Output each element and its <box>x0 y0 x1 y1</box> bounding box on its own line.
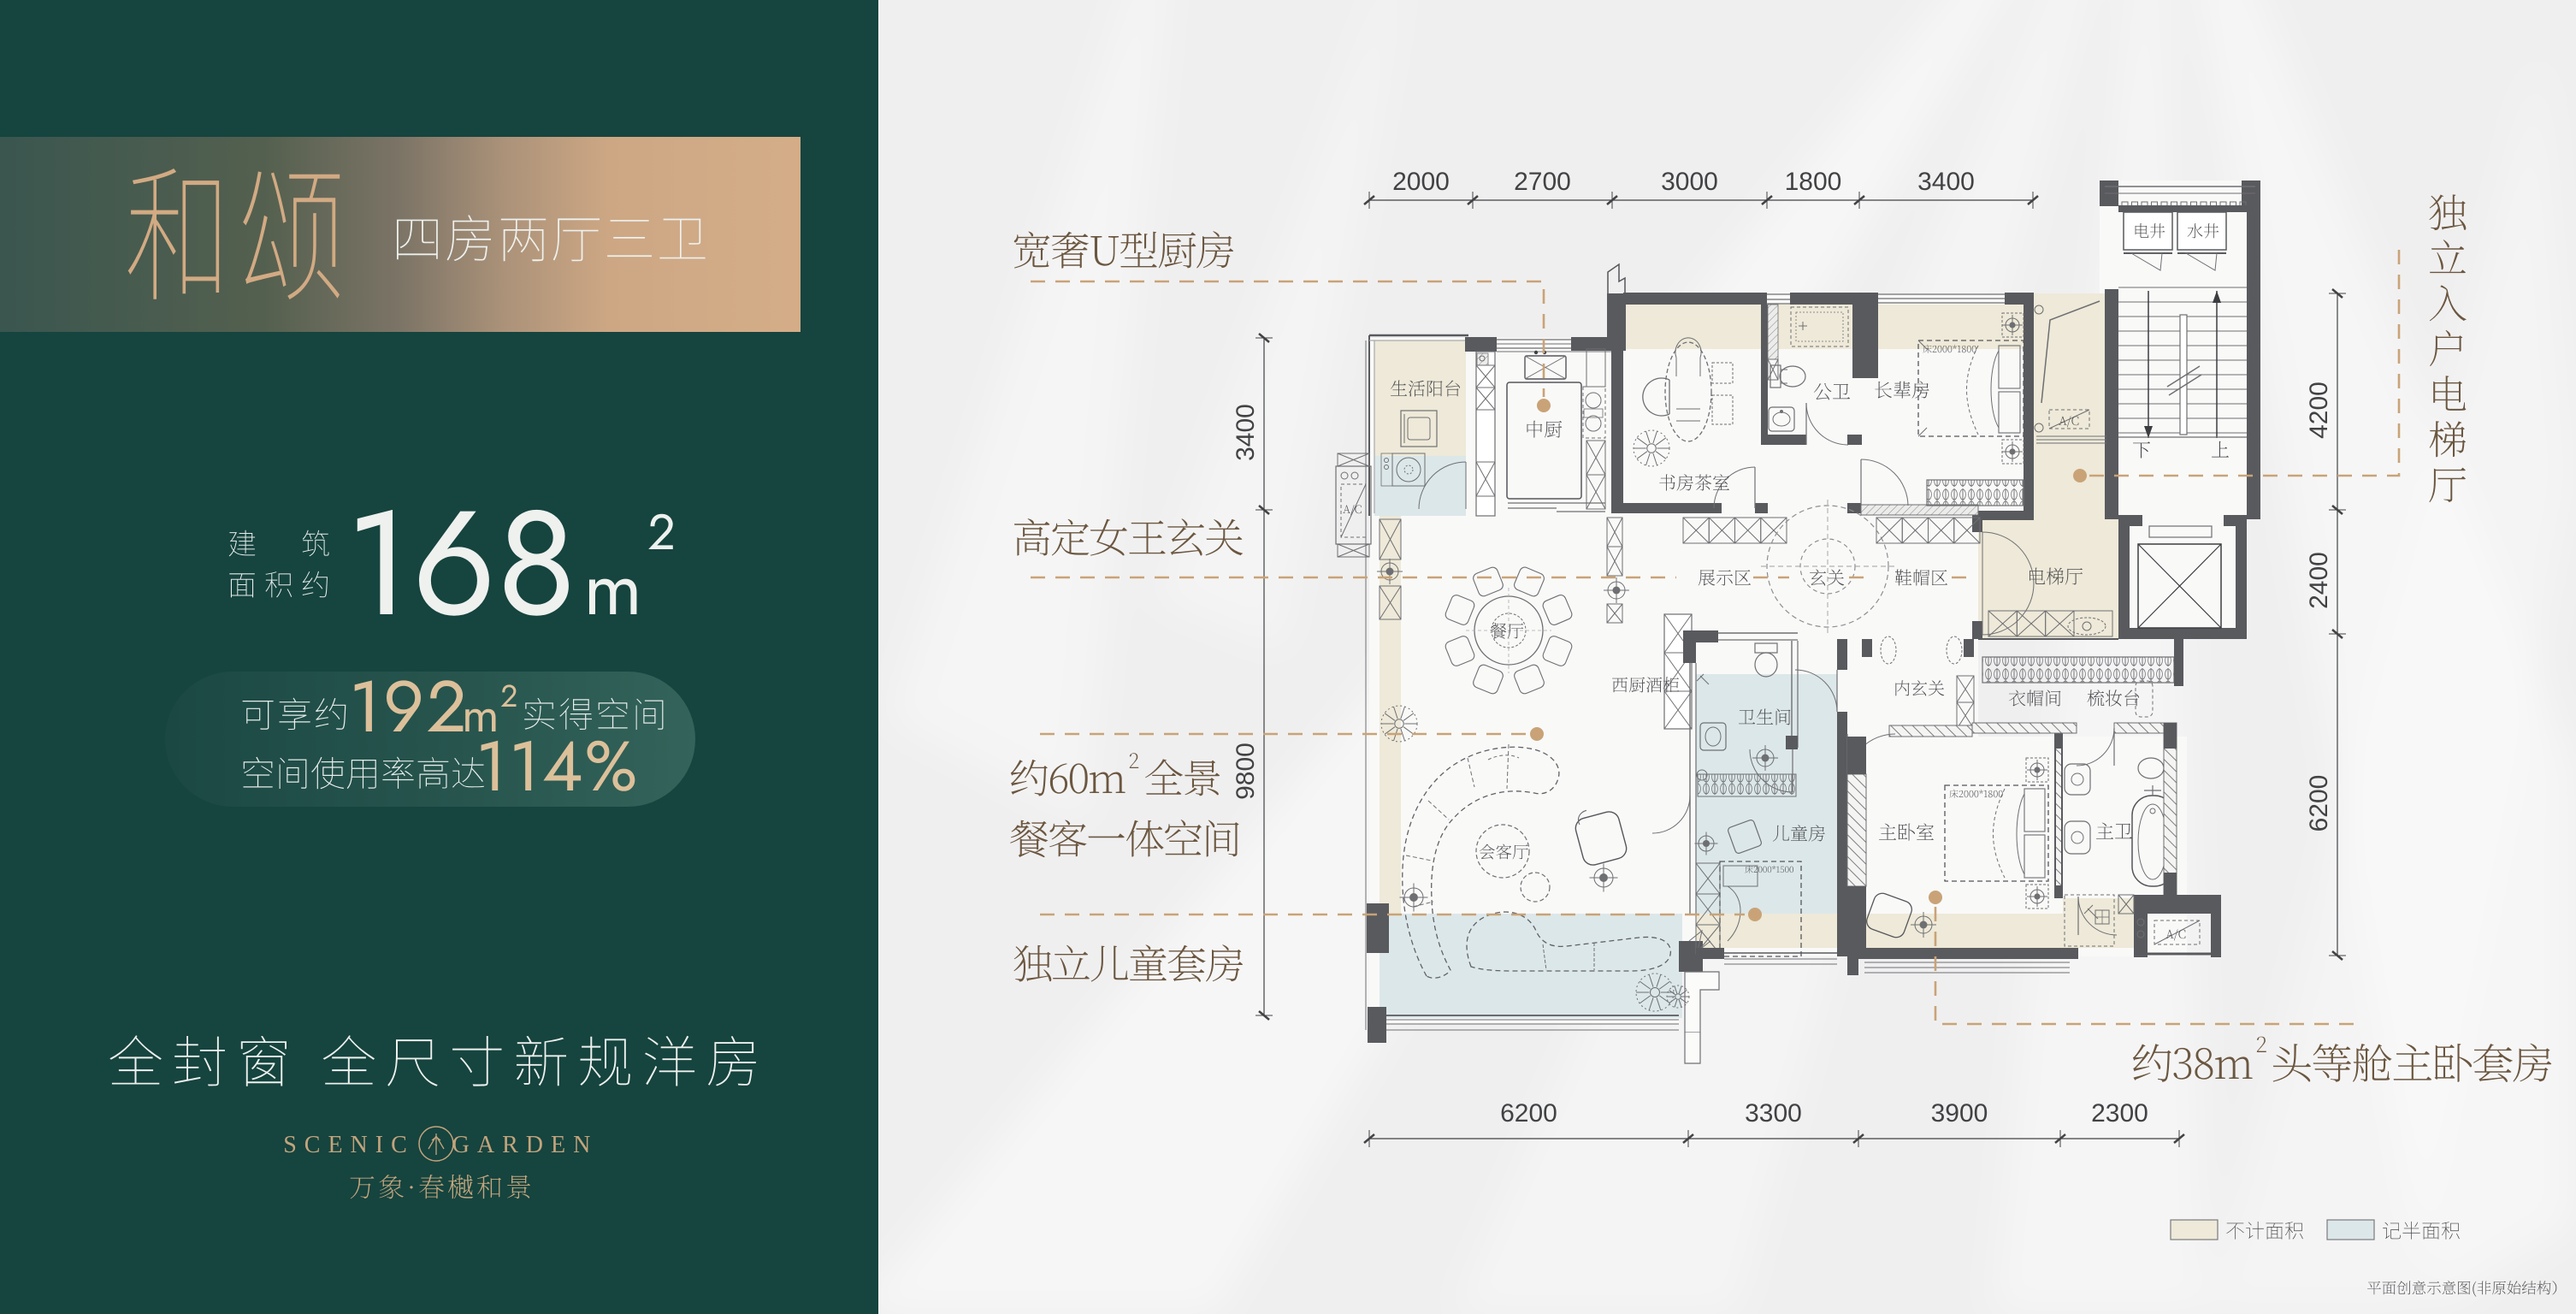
svg-text:6200: 6200 <box>1500 1099 1557 1128</box>
svg-text:3300: 3300 <box>1745 1099 1802 1128</box>
svg-text:2400: 2400 <box>2305 552 2333 609</box>
svg-text:2700: 2700 <box>1514 168 1571 196</box>
svg-text:3900: 3900 <box>1931 1099 1988 1128</box>
svg-text:3400: 3400 <box>1917 168 1975 196</box>
svg-text:GARDEN: GARDEN <box>452 1132 599 1158</box>
svg-text:2300: 2300 <box>2091 1099 2148 1128</box>
svg-text:SCENIC: SCENIC <box>283 1132 415 1158</box>
svg-text:6200: 6200 <box>2305 775 2333 832</box>
svg-text:2000: 2000 <box>1392 168 1450 196</box>
svg-text:3400: 3400 <box>1232 404 1260 461</box>
svg-text:3000: 3000 <box>1661 168 1718 196</box>
svg-text:4200: 4200 <box>2305 382 2333 439</box>
svg-text:1800: 1800 <box>1785 168 1842 196</box>
svg-text:9800: 9800 <box>1232 743 1260 800</box>
